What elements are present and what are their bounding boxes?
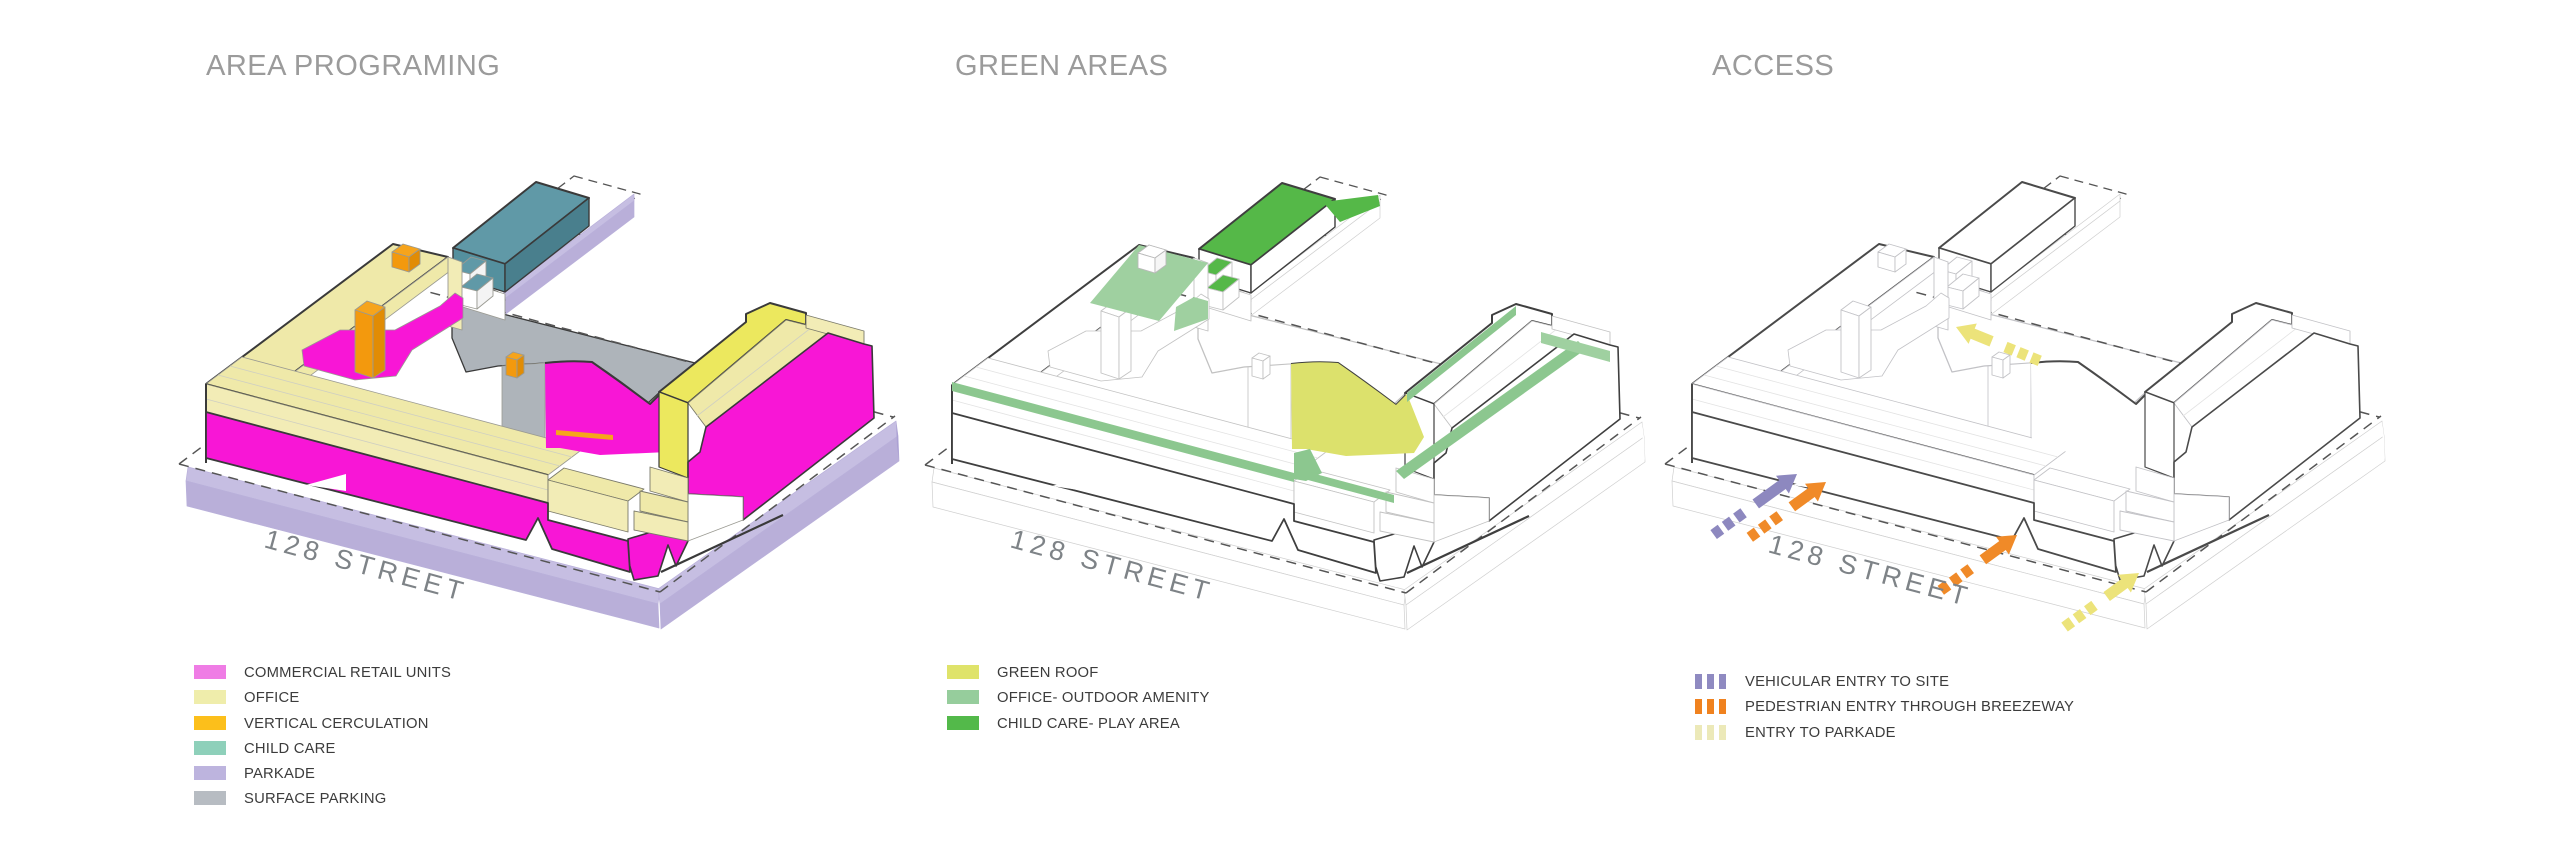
svg-text:CHILD CARE- PLAY AREA: CHILD CARE- PLAY AREA <box>997 716 1180 732</box>
svg-text:AREA PROGRAMING: AREA PROGRAMING <box>206 50 500 82</box>
svg-text:COMMERCIAL RETAIL UNITS: COMMERCIAL RETAIL UNITS <box>244 665 451 681</box>
svg-text:PARKADE: PARKADE <box>244 766 315 782</box>
svg-text:GREEN ROOF: GREEN ROOF <box>997 665 1098 681</box>
svg-text:CHILD CARE: CHILD CARE <box>244 741 336 757</box>
svg-text:SURFACE PARKING: SURFACE PARKING <box>244 791 387 807</box>
svg-text:VEHICULAR ENTRY TO SITE: VEHICULAR ENTRY TO SITE <box>1745 674 1949 690</box>
svg-text:GREEN AREAS: GREEN AREAS <box>955 50 1168 82</box>
svg-text:OFFICE- OUTDOOR AMENITY: OFFICE- OUTDOOR AMENITY <box>997 690 1210 706</box>
svg-text:PEDESTRIAN ENTRY THROUGH BREEZ: PEDESTRIAN ENTRY THROUGH BREEZEWAY <box>1745 699 2074 715</box>
svg-text:ENTRY TO PARKADE: ENTRY TO PARKADE <box>1745 725 1896 741</box>
svg-text:OFFICE: OFFICE <box>244 690 299 706</box>
svg-text:VERTICAL CERCULATION: VERTICAL CERCULATION <box>244 716 429 732</box>
svg-text:ACCESS: ACCESS <box>1712 50 1834 82</box>
